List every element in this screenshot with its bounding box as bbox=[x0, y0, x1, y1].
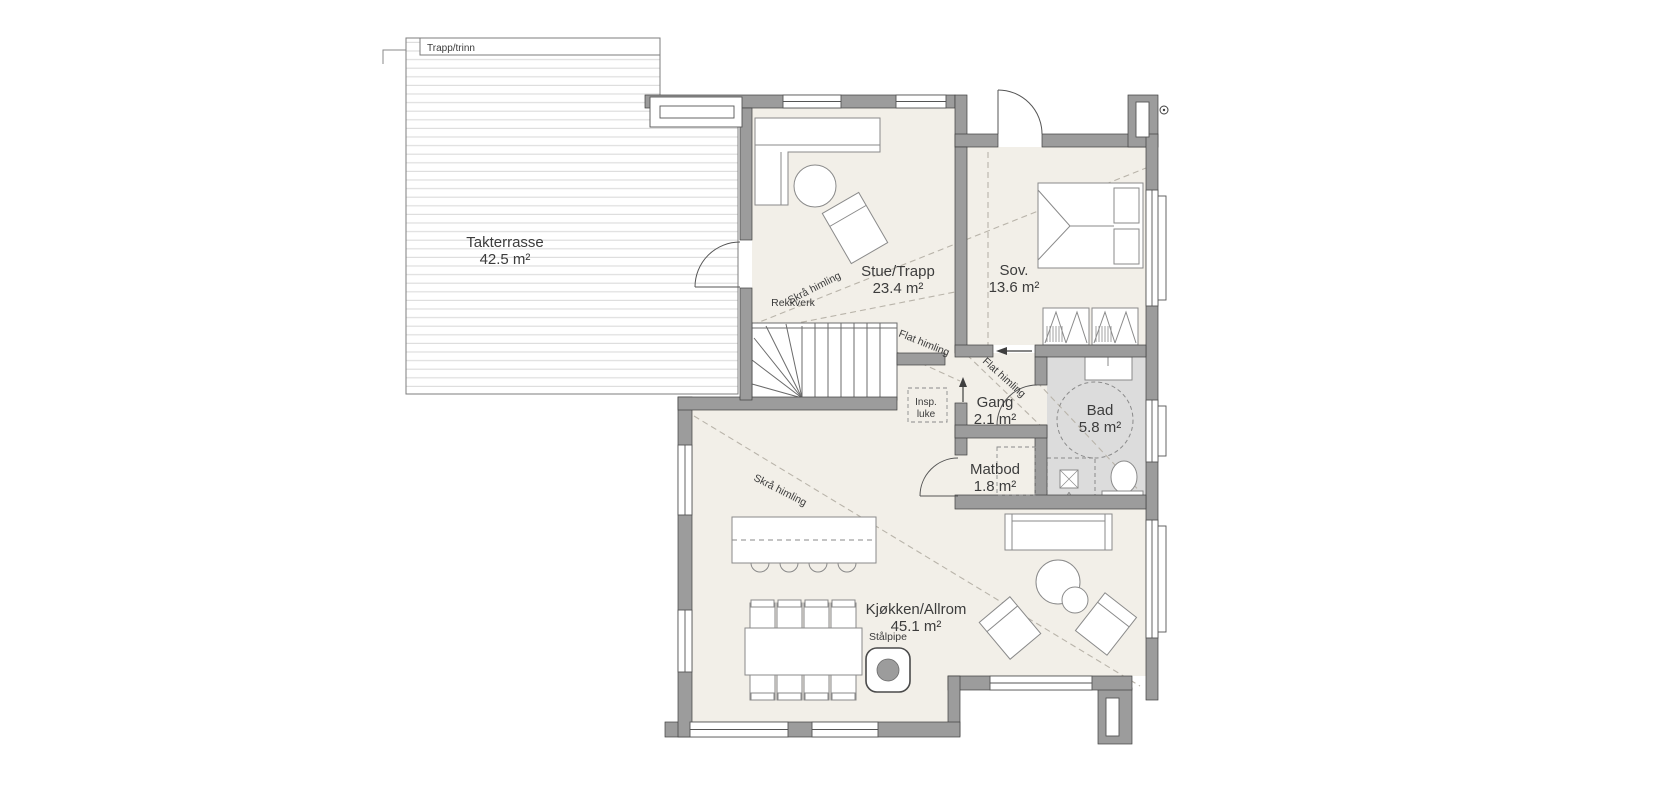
roof-terrace: Trapp/trinn Takterrasse 42.5 m² bbox=[383, 38, 738, 394]
room-area-matbod: 1.8 m² bbox=[974, 478, 1017, 495]
dining-table-icon bbox=[745, 628, 862, 675]
room-area-gang: 2.1 m² bbox=[974, 411, 1017, 428]
room-area-stue: 23.4 m² bbox=[873, 280, 924, 297]
stalpipe-label: Stålpipe bbox=[869, 631, 907, 643]
room-label-stue: Stue/Trapp bbox=[861, 263, 935, 280]
room-label-sov: Sov. bbox=[1000, 262, 1029, 279]
room-area-sov: 13.6 m² bbox=[989, 279, 1040, 296]
terrace-area: 42.5 m² bbox=[480, 251, 531, 268]
coffee-table-icon bbox=[794, 165, 836, 207]
entry-door-top bbox=[998, 90, 1042, 134]
sofa2-icon bbox=[1005, 514, 1112, 550]
toilet-icon bbox=[1111, 461, 1137, 493]
floor-plan-page: Trapp/trinn Takterrasse 42.5 m² bbox=[0, 0, 1670, 800]
round-table-small-icon bbox=[1062, 587, 1088, 613]
steel-chimney bbox=[866, 648, 910, 692]
floor-plan-drawing: Trapp/trinn Takterrasse 42.5 m² bbox=[0, 0, 1670, 800]
room-label-gang: Gang bbox=[977, 394, 1014, 411]
staircase bbox=[752, 323, 897, 400]
insp-luke-label-2: luke bbox=[917, 409, 936, 420]
insp-luke-label-1: Insp. bbox=[915, 397, 937, 408]
chimney-pipe-icon bbox=[877, 659, 899, 681]
room-label-bad: Bad bbox=[1087, 402, 1114, 419]
terrace-label: Takterrasse bbox=[466, 234, 544, 251]
stair-strip-label: Trapp/trinn bbox=[427, 43, 475, 54]
room-area-bad: 5.8 m² bbox=[1079, 419, 1122, 436]
room-label-kjokken: Kjøkken/Allrom bbox=[866, 601, 967, 618]
room-label-matbod: Matbod bbox=[970, 461, 1020, 478]
